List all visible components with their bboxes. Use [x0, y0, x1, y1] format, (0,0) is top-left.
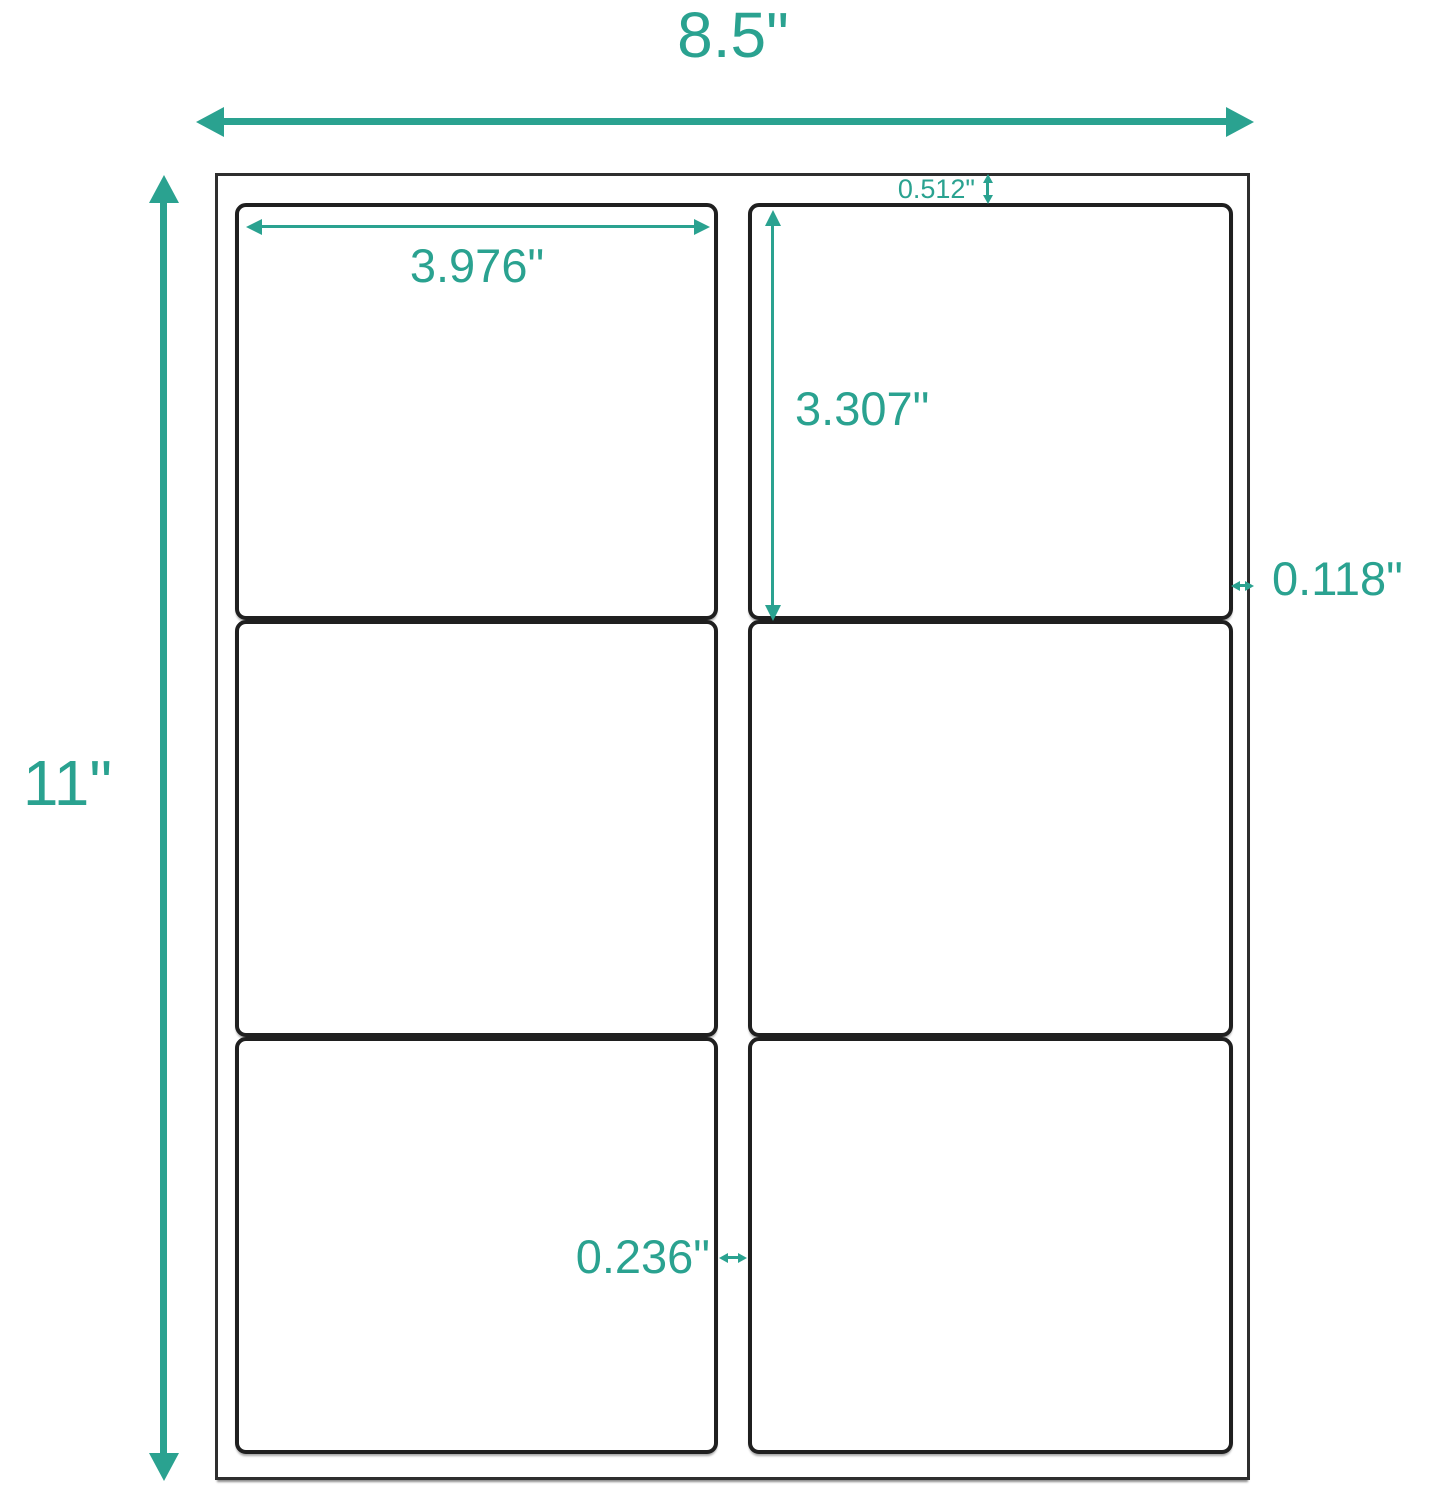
- sheet-width-arrow-icon: [224, 118, 1226, 125]
- side-margin-arrow-icon: [1240, 584, 1245, 587]
- label-height-arrow-icon: [771, 226, 774, 605]
- sheet-height-dimension-label: 11": [0, 748, 135, 818]
- side-margin-dimension-label: 0.118": [1272, 553, 1403, 605]
- label-width-arrow-icon: [262, 225, 694, 228]
- label-cell-r3c2: [748, 1037, 1233, 1454]
- top-margin-arrow-icon: [986, 183, 989, 195]
- label-cell-r2c2: [748, 620, 1233, 1037]
- label-width-dimension-label: 3.976": [327, 240, 627, 292]
- label-height-dimension-label: 3.307": [795, 383, 929, 435]
- column-gap-dimension-label: 0.236": [545, 1231, 710, 1283]
- top-margin-dimension-label: 0.512": [850, 174, 975, 204]
- sheet-height-arrow-icon: [160, 203, 167, 1453]
- column-gap-arrow-icon: [728, 1256, 738, 1259]
- label-sheet-dimension-diagram: { "accent_color": "#2aa290", "line_color…: [0, 0, 1432, 1500]
- sheet-width-dimension-label: 8.5": [633, 0, 833, 70]
- label-cell-r2c1: [235, 620, 718, 1037]
